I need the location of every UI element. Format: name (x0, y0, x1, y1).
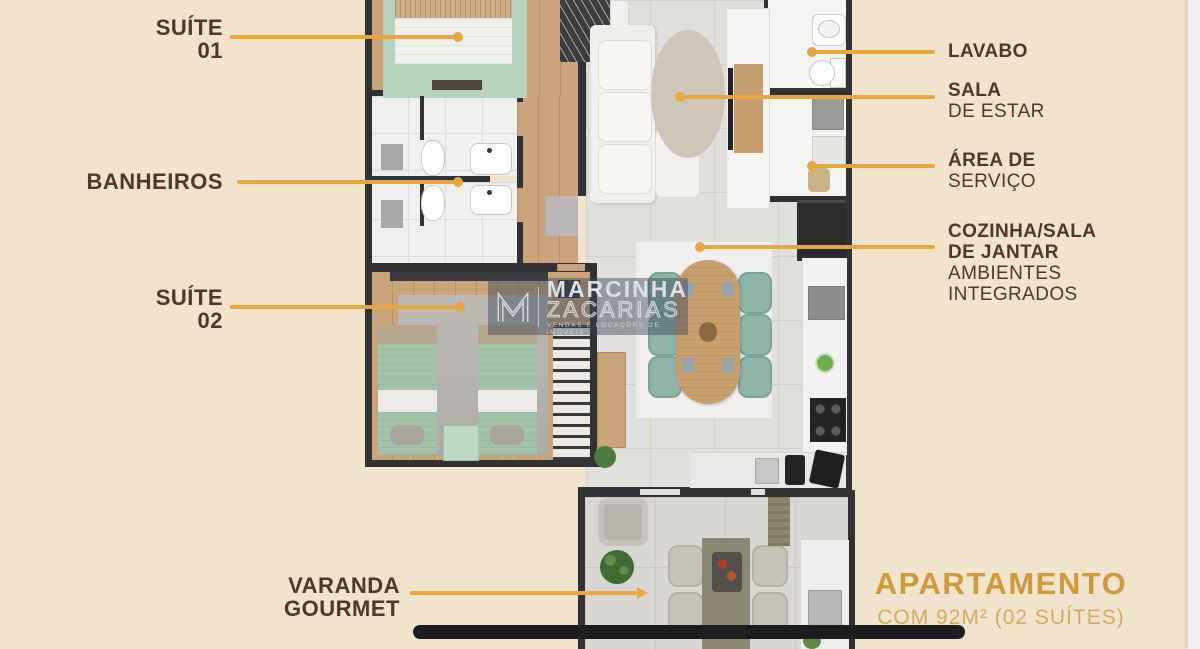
callout-suite-01: SUÍTE 01 (63, 16, 223, 62)
dining-chair-r1 (738, 272, 772, 314)
varanda-chair-r1 (752, 545, 788, 587)
sala-leader-dot (675, 92, 685, 102)
watermark-tagline: VENDAS E LOCAÇÕES DE IMÓVEIS (547, 322, 688, 336)
bath2-door-gap (517, 188, 523, 222)
shower-panel-1 (381, 144, 403, 170)
footer-block: APARTAMENTO COM 92M² (02 SUÍTES) (870, 566, 1132, 630)
laundry-basket (808, 168, 830, 192)
cozinha-subtitle-2: INTEGRADOS (948, 284, 1096, 305)
wall-suite02-bottom (365, 460, 600, 467)
dining-chair-r3 (738, 356, 772, 398)
sideboard (597, 352, 626, 448)
bed2a-sheet (378, 390, 437, 412)
cozinha-leader-dot (695, 242, 705, 252)
bed2a-pillow (390, 425, 424, 445)
bath1-door-gap (517, 102, 523, 136)
sink-1-faucet (487, 148, 492, 153)
varanda-window-1 (640, 489, 680, 495)
watermark-divider (538, 287, 539, 327)
suite02-wardrobe (553, 325, 590, 460)
table-centerpiece (699, 322, 717, 342)
suite01-bed-bench (432, 80, 482, 90)
brand-monogram-icon (496, 285, 530, 329)
varanda-leader-line (410, 591, 637, 595)
page-right-edge (1188, 0, 1200, 649)
fridge (797, 200, 846, 261)
lavabo-title: LAVABO (948, 41, 1028, 62)
lavabo-leader-dot (807, 47, 817, 57)
shower-panel-2 (381, 200, 403, 228)
toilet-1 (421, 140, 445, 176)
suite01-leader-dot (453, 32, 463, 42)
shower-glass-1 (420, 96, 424, 140)
suite02-leader-line (230, 305, 460, 309)
footer-title: APARTAMENTO (870, 566, 1132, 602)
tv-screen (728, 68, 733, 150)
banheiros-leader-line (237, 180, 458, 184)
cozinha-title-2: DE JANTAR (948, 242, 1096, 263)
sala-title: SALA (948, 80, 1045, 101)
entry-mat (545, 196, 578, 236)
callout-banheiros: BANHEIROS (63, 170, 223, 193)
stove (810, 398, 846, 442)
suite01-title: SUÍTE (63, 16, 223, 39)
wall-varanda-top (578, 487, 852, 497)
callout-lavabo: LAVABO (948, 41, 1028, 62)
suite02-leader-dot (455, 302, 465, 312)
suite01-leader-line (230, 35, 458, 39)
varanda-window-2 (751, 489, 765, 495)
watermark: MARCINHA ZACARIAS VENDAS E LOCAÇÕES DE I… (488, 278, 688, 335)
place-setting-4 (722, 358, 734, 372)
living-rug (651, 30, 725, 158)
suite02-subtitle: 02 (63, 309, 223, 332)
callout-servico: ÁREA DE SERVIÇO (948, 150, 1036, 192)
sala-leader-line (680, 95, 935, 99)
washing-machine (812, 97, 844, 130)
kitchen-sink (755, 458, 779, 484)
banheiros-title: BANHEIROS (63, 170, 223, 193)
toilet-2 (421, 185, 445, 221)
suite01-subtitle: 01 (63, 39, 223, 62)
callout-sala: SALA DE ESTAR (948, 80, 1045, 122)
varanda-grill-sink (808, 590, 842, 630)
floorplan-flyer: MARCINHA ZACARIAS VENDAS E LOCAÇÕES DE I… (0, 0, 1200, 649)
servico-leader-line (812, 164, 935, 168)
servico-subtitle: SERVIÇO (948, 171, 1036, 192)
suite01-bed-duvet (395, 18, 512, 64)
callout-varanda: VARANDA GOURMET (240, 574, 400, 620)
wall-hall-living (578, 62, 586, 196)
lavabo-leader-line (812, 50, 935, 54)
dining-chair-r2 (738, 314, 772, 356)
bed2a-headboard (378, 325, 437, 344)
varanda-armchair (598, 498, 648, 546)
sofa-cushion-3 (598, 144, 652, 194)
varanda-chair-l1 (668, 545, 704, 587)
cozinha-subtitle: AMBIENTES (948, 263, 1096, 284)
place-setting-2 (682, 358, 694, 372)
sink-2-faucet (487, 190, 492, 195)
watermark-name-2: ZACARIAS (547, 300, 688, 320)
watermark-text: MARCINHA ZACARIAS VENDAS E LOCAÇÕES DE I… (547, 278, 688, 336)
banheiros-leader-dot (453, 177, 463, 187)
sideboard-plant (594, 446, 616, 468)
kitchen-plant (817, 355, 833, 371)
varanda-leader-arrow (637, 587, 648, 599)
varanda-partition (768, 497, 790, 546)
suite02-nightstand (443, 425, 479, 461)
sala-subtitle: DE ESTAR (948, 101, 1045, 122)
cozinha-leader-line (700, 245, 935, 249)
bed2b-sheet (478, 390, 537, 412)
kitchen-cabinet (808, 286, 845, 320)
place-setting-3 (722, 282, 734, 296)
suite02-title: SUÍTE (63, 286, 223, 309)
lavabo-sink-basin (818, 20, 840, 38)
cozinha-title: COZINHA/SALA (948, 221, 1096, 242)
wall-left (365, 0, 372, 467)
varanda-plant (600, 550, 634, 584)
varanda-food-tray (712, 552, 742, 592)
servico-title: ÁREA DE (948, 150, 1036, 171)
varanda-title: VARANDA (240, 574, 400, 597)
sofa-cushion-1 (598, 40, 652, 90)
wall-lavabo-servico (764, 88, 852, 95)
suite01-bed-headboard (395, 0, 512, 20)
lavabo-toilet-bowl (809, 60, 835, 86)
suite02-door-gap (557, 264, 585, 271)
footer-subtitle: COM 92M² (02 SUÍTES) (870, 606, 1132, 630)
callout-suite-02: SUÍTE 02 (63, 286, 223, 332)
tv-console (734, 64, 763, 153)
varanda-subtitle: GOURMET (240, 597, 400, 620)
callout-cozinha: COZINHA/SALA DE JANTAR AMBIENTES INTEGRA… (948, 221, 1096, 305)
bed2b-pillow (490, 425, 524, 445)
sofa-cushion-2 (598, 92, 652, 142)
coffee-machine (785, 455, 805, 485)
servico-leader-dot (807, 161, 817, 171)
